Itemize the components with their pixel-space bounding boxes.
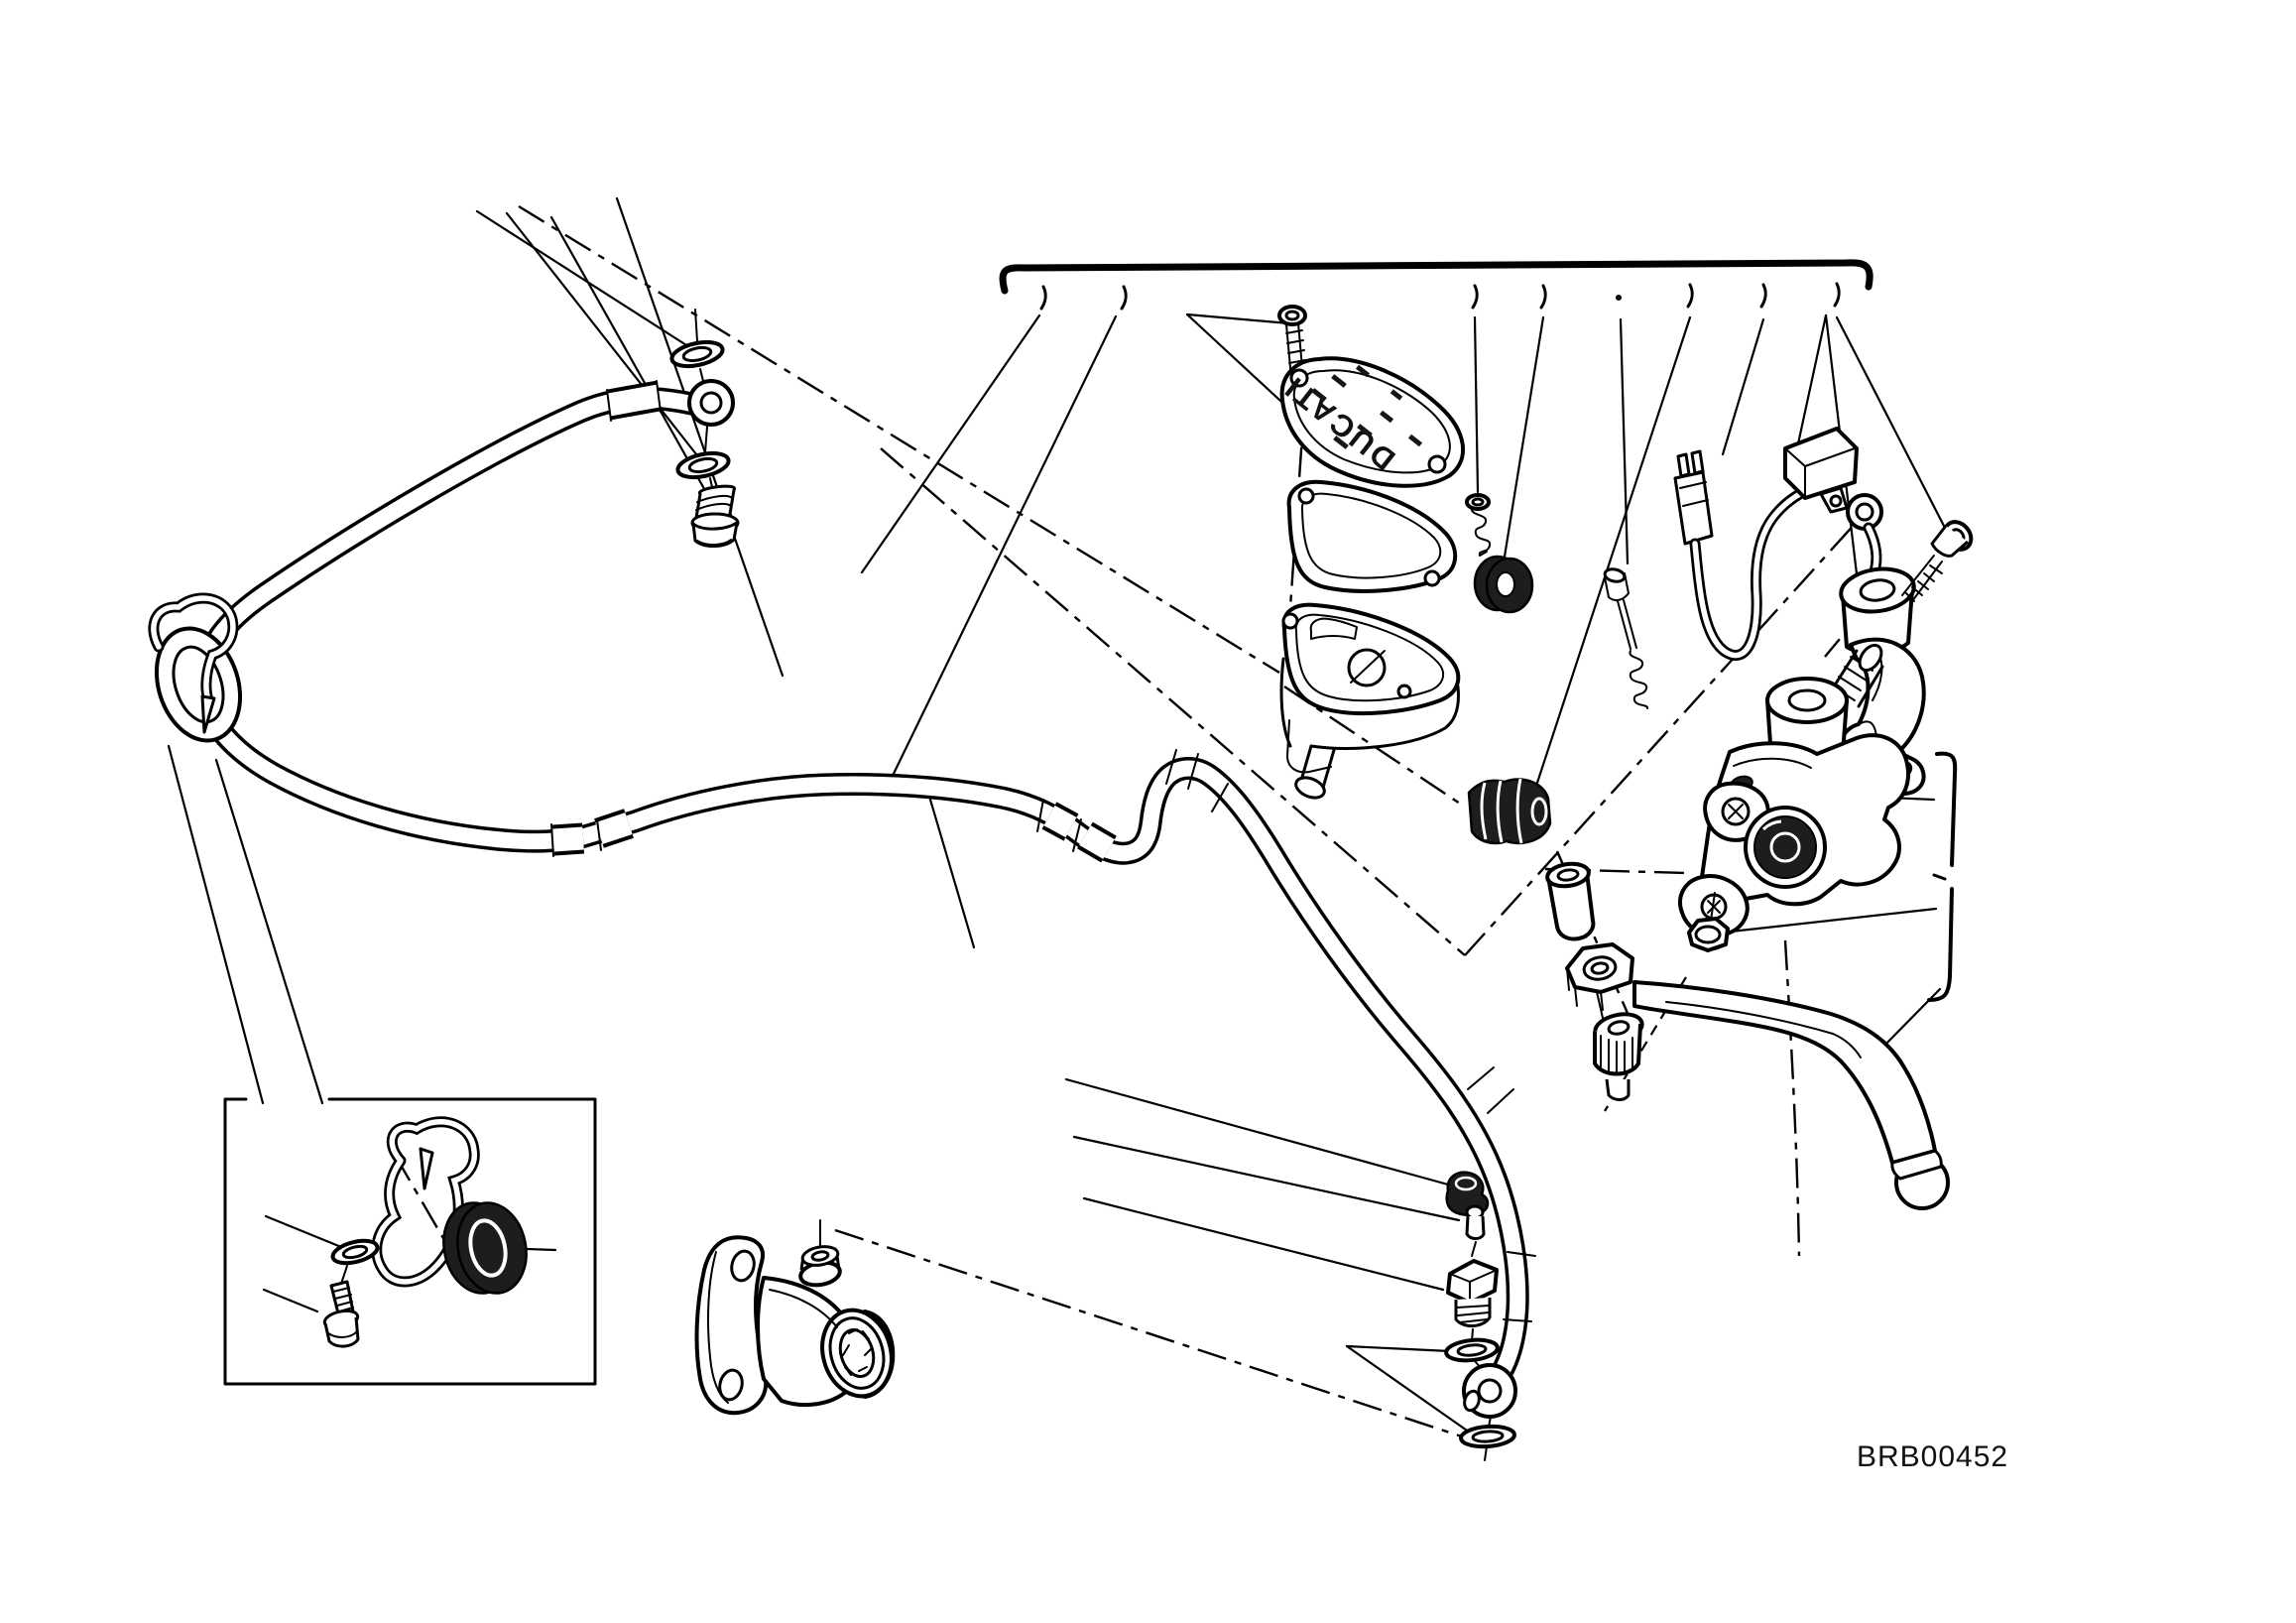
- washer-lower-1: [1445, 1337, 1499, 1362]
- reservoir-screw-spring: [1467, 495, 1490, 556]
- inset-detail-box: [225, 1099, 595, 1384]
- figure-code: BRB00452: [1857, 1440, 2008, 1473]
- clutch-lever: [1634, 982, 1948, 1208]
- clutch-slave-cylinder: [697, 1220, 902, 1413]
- bleed-valve: [1448, 1261, 1497, 1341]
- inset-spring-washer: [330, 1237, 379, 1268]
- bleed-nipple: [1467, 1206, 1484, 1256]
- fluid-reservoir: [1281, 605, 1458, 802]
- washer-lower-2: [1460, 1425, 1514, 1460]
- right-callout-bracket: [1929, 754, 1955, 1000]
- upper-sealing-washer: [669, 338, 724, 370]
- clutch-switch-wire: [1695, 429, 1857, 656]
- hose-ferrule: [607, 381, 661, 421]
- diagram-page: DUCATI: [0, 0, 2296, 1623]
- switch-connector: [1675, 451, 1712, 544]
- top-callout-bracket: [1003, 263, 1870, 309]
- clamp-bolt: [1902, 517, 1977, 601]
- inset-screw: [323, 1266, 360, 1346]
- spacer-bushing: [1546, 861, 1594, 938]
- pushrod-spring: [1604, 567, 1647, 708]
- piston-bore: [1746, 808, 1825, 887]
- inset-grommet: [435, 1196, 535, 1300]
- reservoir-grommet: [1475, 557, 1532, 612]
- reservoir-cap: DUCATI: [1276, 358, 1463, 485]
- diaphragm-bellows: [1469, 779, 1550, 843]
- banjo-bolt: [692, 478, 738, 547]
- lever-adjuster: [1567, 944, 1644, 1100]
- lower-banjo-eyelet: [1462, 1361, 1515, 1427]
- parts-diagram-canvas: DUCATI: [0, 0, 2296, 1623]
- cap-gasket: [1289, 482, 1456, 591]
